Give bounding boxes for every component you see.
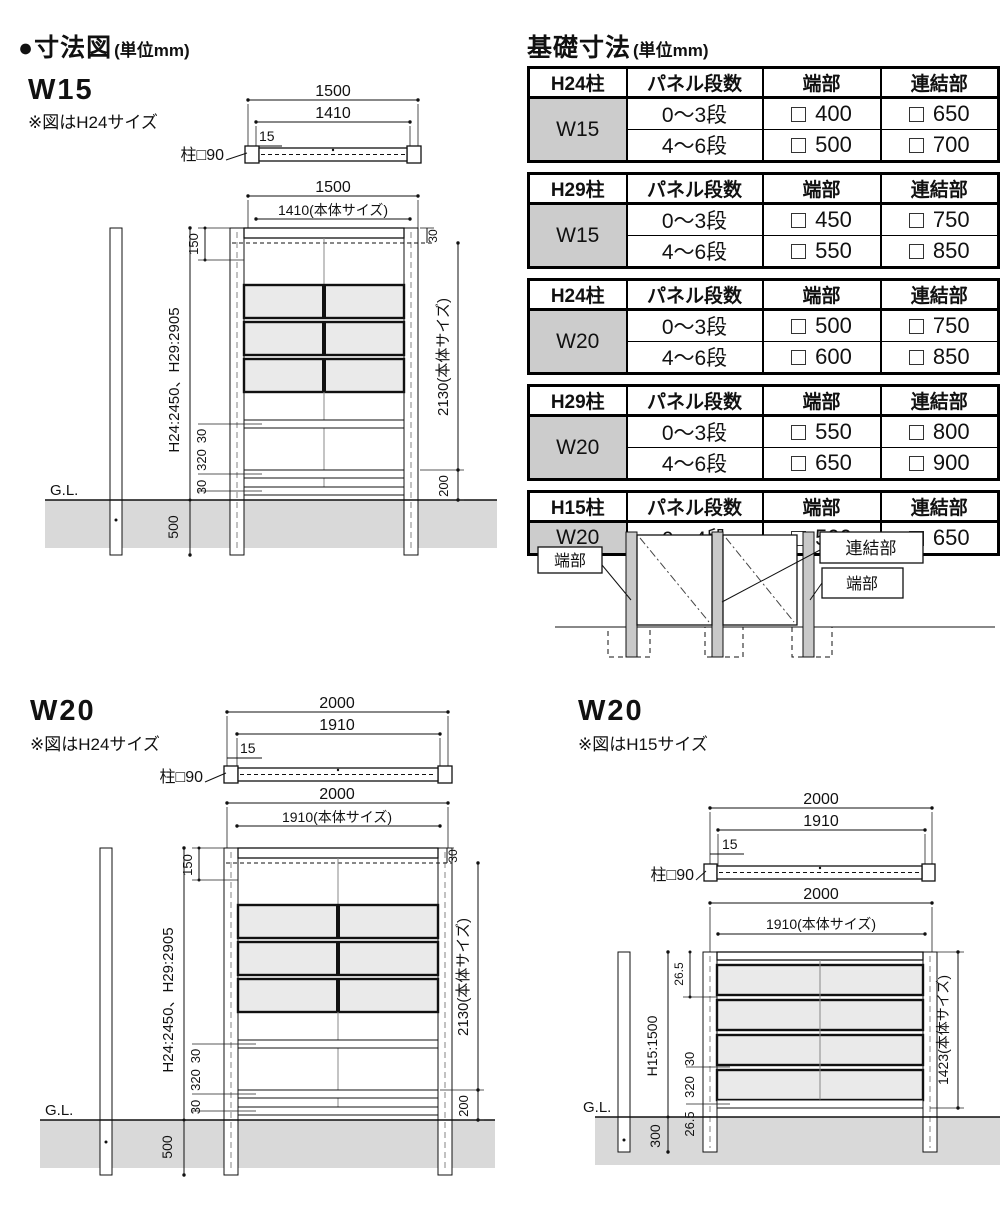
- col-header-joint: 連結部: [881, 174, 999, 204]
- lower-rail: [244, 420, 404, 428]
- end-value: 500: [815, 132, 852, 157]
- dim-post-height: H24:2450、H29:2905: [160, 927, 177, 1072]
- joint-value: 850: [933, 344, 970, 369]
- square-section-icon: [909, 319, 924, 334]
- square-section-icon: [909, 350, 924, 365]
- end-value: 550: [815, 238, 852, 263]
- table-row: W20 0〜3段 550 800: [529, 416, 999, 448]
- dim-overall-width: 1500: [315, 179, 351, 196]
- dim-embed-depth: 300: [647, 1124, 663, 1148]
- dim-top-offset: 150: [186, 233, 201, 255]
- col-header-end: 端部: [763, 386, 881, 416]
- connection-diagram: 端部 連結部 端部: [525, 515, 1000, 695]
- joint-value: 850: [933, 238, 970, 263]
- col-header-end: 端部: [763, 280, 881, 310]
- panel-steps-cell: 0〜3段: [627, 204, 763, 236]
- dim-inset: 15: [240, 740, 256, 756]
- end-value: 500: [815, 313, 852, 338]
- end-value-cell: 400: [763, 98, 881, 130]
- dim-top-rail-offset: 30: [446, 849, 460, 863]
- panel-steps-cell: 4〜6段: [627, 236, 763, 268]
- dim-overall-width: 2000: [803, 791, 839, 808]
- panel-steps-cell: 0〜3段: [627, 416, 763, 448]
- w20h24-plan-view: 2000 1910 15 柱□90: [160, 695, 452, 786]
- dim-body-width: 1410(本体サイズ): [278, 202, 388, 218]
- table-row: W15 0〜3段 450 750: [529, 204, 999, 236]
- end-value-cell: 550: [763, 416, 881, 448]
- bottom-rail: [717, 1100, 923, 1108]
- table-row: W15 0〜3段 400 650: [529, 98, 999, 130]
- ground-level-label: G.L.: [50, 482, 78, 499]
- dim-overall-width: 2000: [803, 886, 839, 903]
- dim-inset: 15: [722, 836, 738, 852]
- col-header-panel: パネル段数: [627, 386, 763, 416]
- size-cell: W15: [529, 98, 627, 162]
- foundation-table-h29-w15: H29柱 パネル段数 端部 連結部 W15 0〜3段 450 750 4〜6段 …: [527, 172, 1000, 269]
- w20h24-front-view: 2000 1910(本体サイズ) 150 H24:2450、H29:2905: [40, 786, 495, 1177]
- dim-body-height: 2130(本体サイズ): [435, 298, 452, 416]
- foundation-table-h24-w20: H24柱 パネル段数 端部 連結部 W20 0〜3段 500 750 4〜6段 …: [527, 278, 1000, 375]
- end-part-label: 端部: [554, 552, 586, 570]
- joint-value: 900: [933, 450, 970, 475]
- col-header-joint: 連結部: [881, 280, 999, 310]
- end-value: 550: [815, 419, 852, 444]
- ground-level-label: G.L.: [583, 1099, 611, 1116]
- bottom-rail: [238, 1107, 438, 1115]
- dim-rail-gap: 320: [194, 449, 209, 471]
- joint-part-label: 連結部: [846, 539, 897, 558]
- dim-rail: 30: [188, 1049, 203, 1063]
- joint-value-cell: 850: [881, 342, 999, 374]
- lower-rail: [244, 470, 404, 478]
- square-section-icon: [909, 425, 924, 440]
- dim-embed-depth: 500: [165, 515, 181, 539]
- dim-top-rail-offset: 30: [426, 229, 440, 243]
- square-section-icon: [791, 350, 806, 365]
- joint-value: 650: [933, 101, 970, 126]
- square-section-icon: [909, 138, 924, 153]
- col-header-post: H24柱: [529, 280, 627, 310]
- end-value: 450: [815, 207, 852, 232]
- post-size-label: 柱□90: [181, 146, 225, 164]
- end-value-cell: 500: [763, 310, 881, 342]
- dim-body-width: 1910: [319, 717, 355, 734]
- end-value-cell: 450: [763, 204, 881, 236]
- dim-rail: 26.5: [682, 1111, 697, 1136]
- post-size-label: 柱□90: [160, 768, 204, 786]
- size-cell: W20: [529, 416, 627, 480]
- size-cell: W15: [529, 204, 627, 268]
- dim-rail-gap: 320: [682, 1076, 697, 1098]
- square-section-icon: [909, 107, 924, 122]
- end-value-cell: 550: [763, 236, 881, 268]
- side-post: [100, 848, 112, 1175]
- panel-steps-cell: 4〜6段: [627, 448, 763, 480]
- col-header-joint: 連結部: [881, 386, 999, 416]
- dim-bottom-gap: 200: [456, 1095, 471, 1117]
- square-section-icon: [791, 425, 806, 440]
- foundation-title: 基礎寸法 (単位mm): [527, 28, 709, 64]
- col-header-post: H24柱: [529, 68, 627, 98]
- dim-body-width: 1910(本体サイズ): [766, 916, 876, 932]
- w20h15-drawing: 2000 1910 15 柱□90 2000 1910(本体サイズ): [560, 690, 1000, 1209]
- square-section-icon: [791, 244, 806, 259]
- end-post: [626, 532, 637, 657]
- col-header-end: 端部: [763, 68, 881, 98]
- col-header-end: 端部: [763, 174, 881, 204]
- w15-front-view: 1500 1410(本体サイズ) 150 H24:2450、H29:2905: [45, 179, 497, 557]
- dim-rail: 30: [188, 1100, 203, 1114]
- end-value-cell: 500: [763, 130, 881, 162]
- square-section-icon: [909, 244, 924, 259]
- square-section-icon: [791, 138, 806, 153]
- w20h15-plan-view: 2000 1910 15 柱□90: [651, 791, 935, 884]
- joint-value-cell: 900: [881, 448, 999, 480]
- table-row: W20 0〜3段 500 750: [529, 310, 999, 342]
- joint-value: 800: [933, 419, 970, 444]
- end-value: 600: [815, 344, 852, 369]
- joint-value-cell: 850: [881, 236, 999, 268]
- col-header-post: H29柱: [529, 174, 627, 204]
- w15-plan-view: 1500 1410 15 柱□90: [181, 83, 421, 164]
- dim-body-height: 2130(本体サイズ): [455, 918, 472, 1036]
- square-section-icon: [909, 456, 924, 471]
- square-section-icon: [791, 213, 806, 228]
- lower-rail: [238, 1040, 438, 1048]
- top-rail: [238, 848, 438, 858]
- dim-overall-width: 2000: [319, 786, 355, 803]
- dim-post-height: H15:1500: [644, 1015, 660, 1076]
- joint-value: 700: [933, 132, 970, 157]
- dim-top-offset: 26.5: [672, 962, 686, 986]
- dim-inset: 15: [259, 128, 275, 144]
- post-size-label: 柱□90: [651, 866, 695, 884]
- w20h24-drawing: 2000 1910 15 柱□90 2000 1910(本体サイズ): [0, 690, 520, 1209]
- joint-value-cell: 700: [881, 130, 999, 162]
- panel-steps-cell: 4〜6段: [627, 130, 763, 162]
- footing: [705, 627, 743, 657]
- dim-overall-width: 2000: [319, 695, 355, 712]
- w15-drawing: 1500 1410 15 柱□90 1500 1410(本体サイズ): [0, 0, 520, 680]
- dim-embed-depth: 500: [159, 1135, 175, 1159]
- top-rail: [244, 228, 404, 238]
- foundation-table-h29-w20: H29柱 パネル段数 端部 連結部 W20 0〜3段 550 800 4〜6段 …: [527, 384, 1000, 481]
- dim-post-height: H24:2450、H29:2905: [166, 307, 183, 452]
- col-header-joint: 連結部: [881, 68, 999, 98]
- dim-bottom-gap: 200: [436, 475, 451, 497]
- dim-body-width: 1910: [803, 813, 839, 830]
- dim-body-height: 1423(本体サイズ): [935, 975, 951, 1085]
- col-header-post: H29柱: [529, 386, 627, 416]
- foundation-title-text: 基礎寸法: [527, 28, 631, 64]
- square-section-icon: [909, 213, 924, 228]
- joint-value: 750: [933, 313, 970, 338]
- foundation-table-h24-w15: H24柱 パネル段数 端部 連結部 W15 0〜3段 400 650 4〜6段 …: [527, 66, 1000, 163]
- square-section-icon: [791, 107, 806, 122]
- end-part-label: 端部: [846, 575, 878, 593]
- w20h15-front-view: 2000 1910(本体サイズ) 26.5 H15:1500 30 320 26…: [583, 886, 1000, 1165]
- end-value-cell: 650: [763, 448, 881, 480]
- square-section-icon: [791, 319, 806, 334]
- lower-rail: [238, 1090, 438, 1098]
- joint-value-cell: 800: [881, 416, 999, 448]
- joint-value-cell: 750: [881, 204, 999, 236]
- dim-body-width: 1910(本体サイズ): [282, 809, 392, 825]
- size-cell: W20: [529, 310, 627, 374]
- col-header-panel: パネル段数: [627, 68, 763, 98]
- square-section-icon: [791, 456, 806, 471]
- dim-rail-gap: 320: [188, 1069, 203, 1091]
- end-post: [803, 532, 814, 657]
- top-rail: [717, 952, 923, 960]
- col-header-panel: パネル段数: [627, 280, 763, 310]
- panel-steps-cell: 0〜3段: [627, 310, 763, 342]
- joint-value-cell: 650: [881, 98, 999, 130]
- dim-rail: 30: [682, 1052, 697, 1066]
- side-post: [618, 952, 630, 1152]
- panel-steps-cell: 0〜3段: [627, 98, 763, 130]
- dim-top-offset: 150: [180, 854, 195, 876]
- joint-value-cell: 750: [881, 310, 999, 342]
- end-value: 650: [815, 450, 852, 475]
- dim-rail: 30: [194, 429, 209, 443]
- joint-post: [712, 532, 723, 657]
- dim-overall-width: 1500: [315, 83, 351, 100]
- panel-steps-cell: 4〜6段: [627, 342, 763, 374]
- foundation-title-unit: (単位mm): [633, 36, 709, 61]
- end-value-cell: 600: [763, 342, 881, 374]
- ground-level-label: G.L.: [45, 1102, 73, 1119]
- dim-body-width: 1410: [315, 105, 351, 122]
- dim-rail: 30: [194, 480, 209, 494]
- foundation-tables: H24柱 パネル段数 端部 連結部 W15 0〜3段 400 650 4〜6段 …: [527, 66, 1000, 556]
- side-post: [110, 228, 122, 555]
- col-header-panel: パネル段数: [627, 174, 763, 204]
- bottom-rail: [244, 487, 404, 495]
- joint-value: 750: [933, 207, 970, 232]
- end-value: 400: [815, 101, 852, 126]
